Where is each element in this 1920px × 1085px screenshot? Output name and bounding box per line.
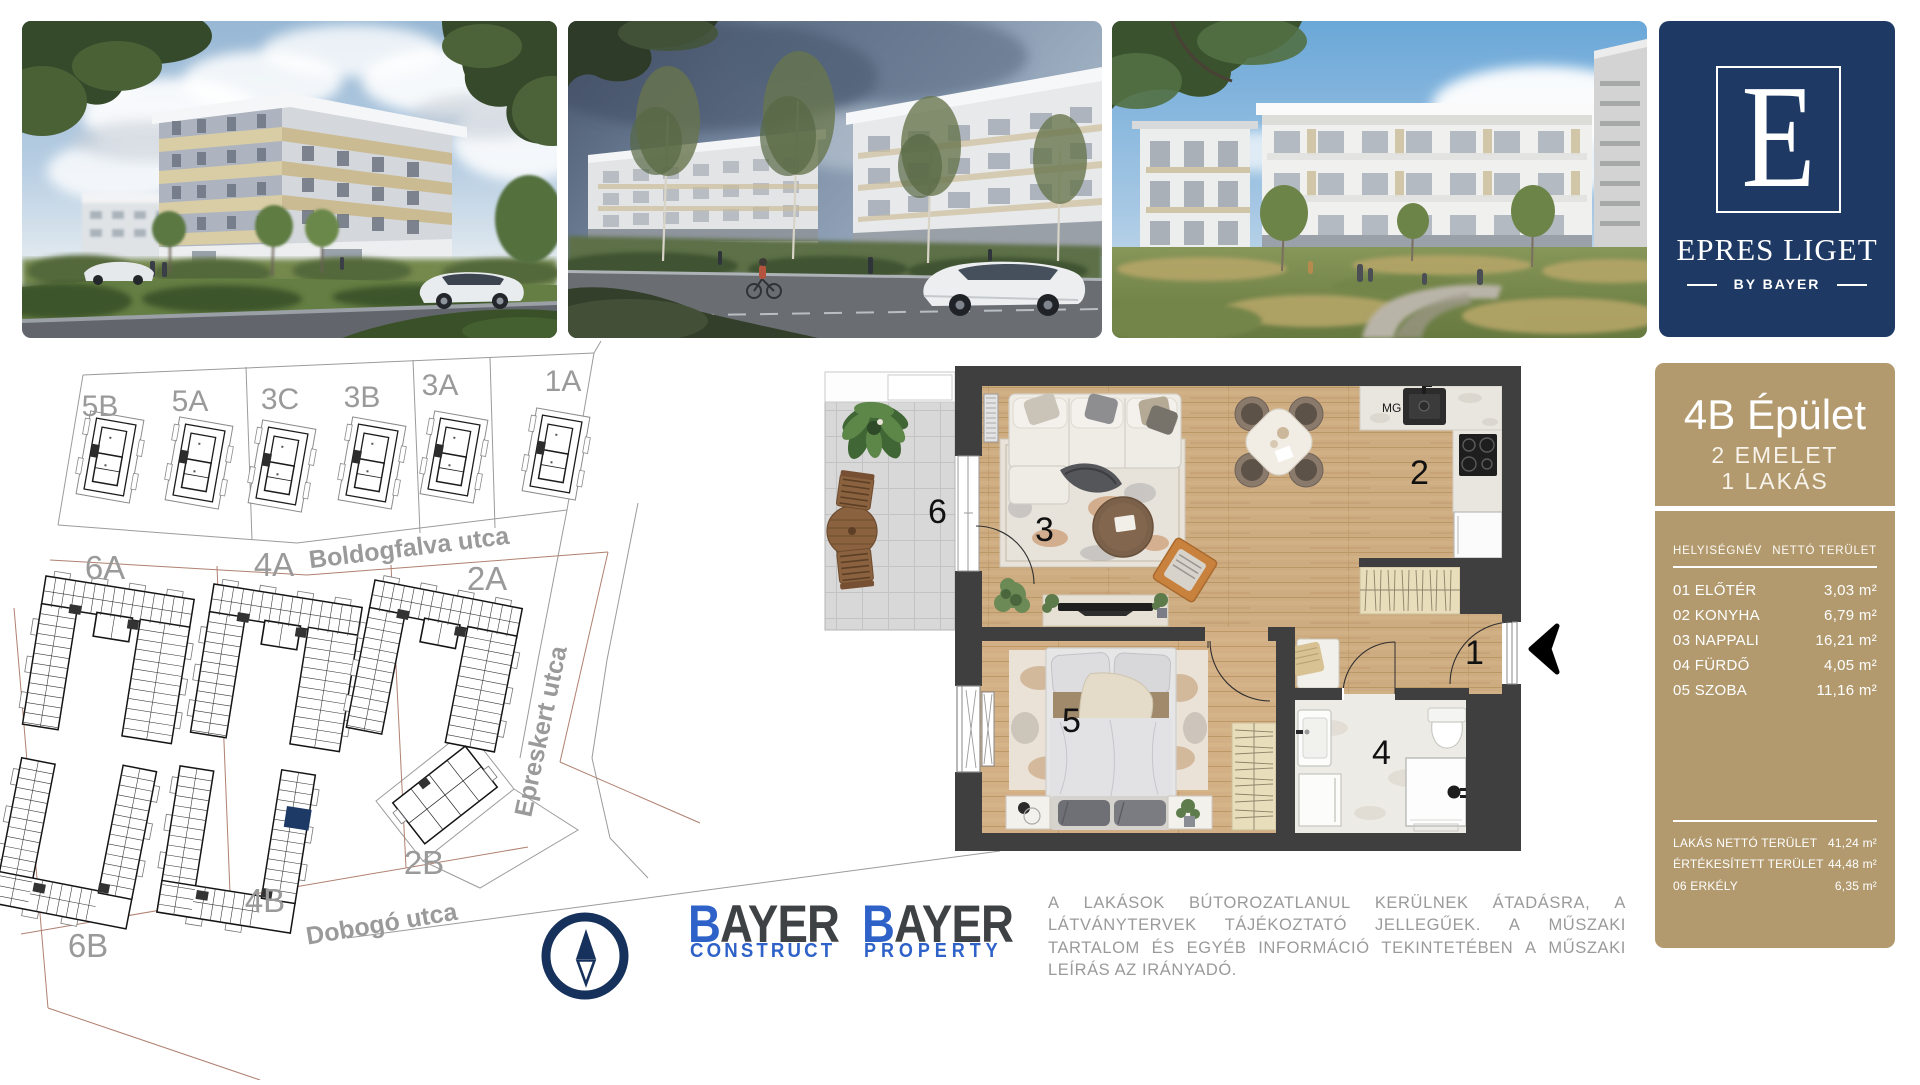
svg-text:Dobogó utca: Dobogó utca [304,898,460,951]
svg-text:4A: 4A [254,546,294,583]
svg-text:2B: 2B [404,844,444,881]
svg-text:3A: 3A [422,369,459,402]
svg-text:2A: 2A [467,560,507,597]
svg-text:3C: 3C [261,383,299,416]
svg-text:4: 4 [1372,734,1391,772]
svg-text:5: 5 [1062,702,1081,740]
svg-text:5A: 5A [172,385,209,418]
svg-text:1A: 1A [545,365,582,398]
svg-text:6A: 6A [85,549,125,586]
svg-text:2: 2 [1410,454,1429,492]
svg-text:MG: MG [1382,401,1401,415]
svg-text:6: 6 [928,493,947,531]
svg-text:Epreskert utca: Epreskert utca [509,642,573,819]
svg-text:6B: 6B [68,927,108,964]
svg-text:4B: 4B [245,882,285,919]
svg-text:1: 1 [1465,634,1484,672]
svg-text:5B: 5B [82,390,119,423]
svg-text:3: 3 [1035,511,1054,549]
svg-text:3B: 3B [344,381,381,414]
